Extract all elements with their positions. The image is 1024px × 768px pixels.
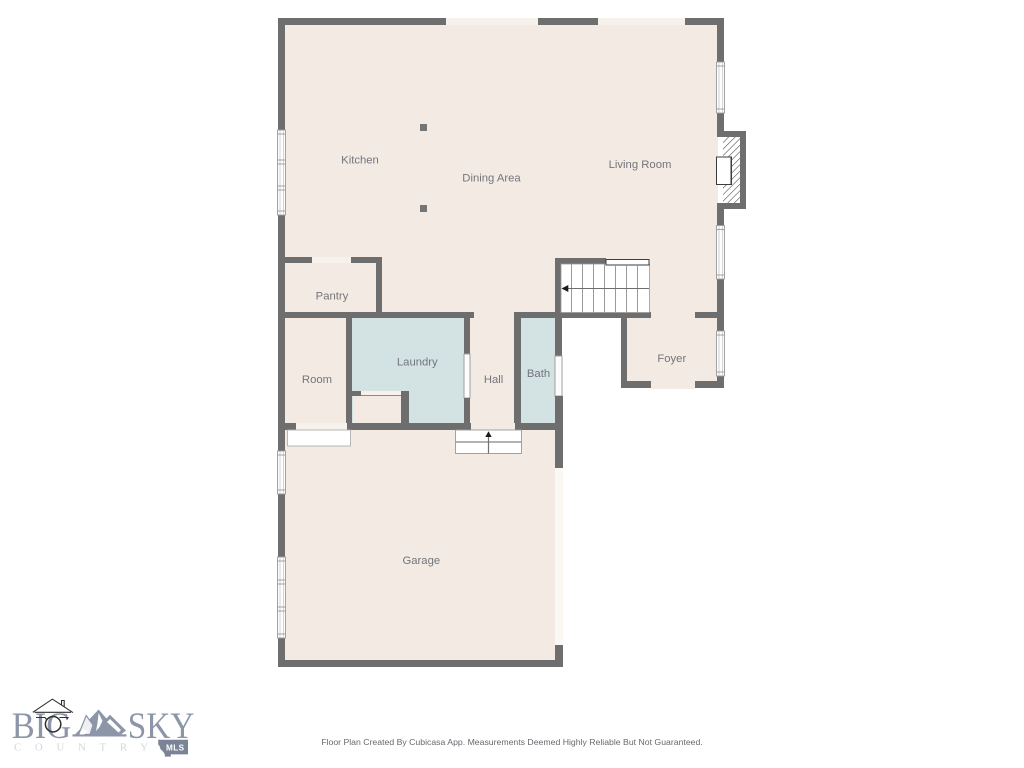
svg-text:Living Room: Living Room <box>609 159 672 171</box>
svg-text:Foyer: Foyer <box>657 353 686 365</box>
svg-text:Room: Room <box>302 374 332 386</box>
svg-text:Laundry: Laundry <box>397 357 438 369</box>
svg-text:Hall: Hall <box>484 374 503 386</box>
svg-text:Pantry: Pantry <box>316 291 349 303</box>
svg-text:Bath: Bath <box>527 368 550 380</box>
svg-text:Garage: Garage <box>402 555 440 567</box>
svg-text:Floor Plan Created By Cubicasa: Floor Plan Created By Cubicasa App. Meas… <box>321 737 702 747</box>
svg-text:Kitchen: Kitchen <box>341 155 379 167</box>
svg-text:MLS: MLS <box>166 744 185 753</box>
svg-text:Dining Area: Dining Area <box>462 173 521 185</box>
